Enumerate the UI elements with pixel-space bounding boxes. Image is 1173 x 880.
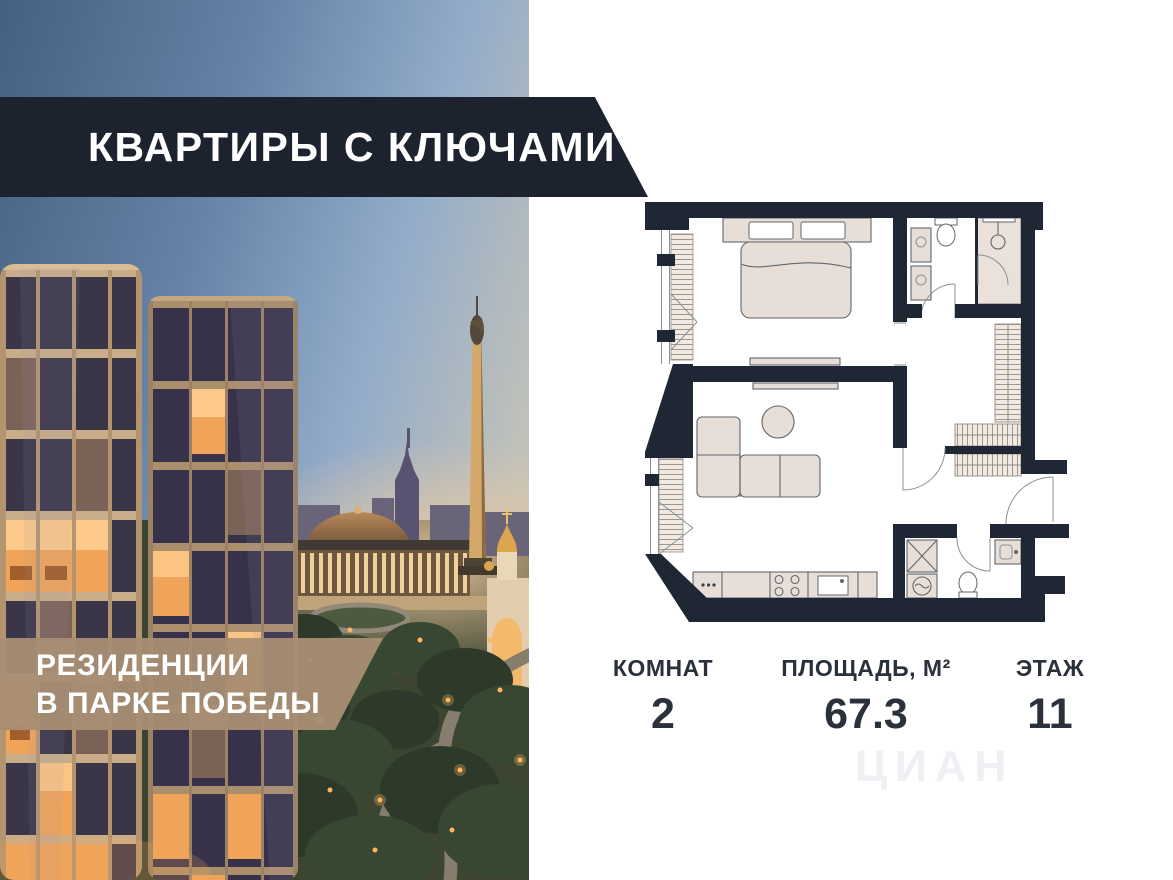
residence-banner: РЕЗИДЕНЦИИ В ПАРКЕ ПОБЕДЫ <box>0 638 383 730</box>
floor-plan-drawing: .wall{fill:#1e2733;} .fur{fill:#e7dfd7;s… <box>645 202 1069 622</box>
residential-tower-left <box>0 264 142 880</box>
stat-floor-value: 11 <box>965 690 1135 739</box>
kitchen-area <box>693 572 877 598</box>
residence-line1: РЕЗИДЕНЦИИ <box>36 647 249 685</box>
headline-text: КВАРТИРЫ С КЛЮЧАМИ <box>0 124 616 171</box>
stat-area: ПЛОЩАДЬ, М² 67.3 <box>756 655 976 739</box>
watermark: ЦИАН <box>855 742 1095 792</box>
stat-area-value: 67.3 <box>756 690 976 739</box>
residence-line2: В ПАРКЕ ПОБЕДЫ <box>36 685 320 723</box>
stat-floor-label: ЭТАЖ <box>965 655 1135 682</box>
listing-card: КВАРТИРЫ С КЛЮЧАМИ РЕЗИДЕНЦИИ В ПАРКЕ ПО… <box>0 0 1173 880</box>
residential-tower-right <box>148 296 298 880</box>
stat-rooms: КОМНАТ 2 <box>578 655 748 739</box>
headline-banner: КВАРТИРЫ С КЛЮЧАМИ <box>0 97 648 197</box>
stat-area-label: ПЛОЩАДЬ, М² <box>756 655 976 682</box>
stat-rooms-value: 2 <box>578 690 748 739</box>
floor-plan: .wall{fill:#1e2733;} .fur{fill:#e7dfd7;s… <box>645 202 1069 622</box>
stat-floor: ЭТАЖ 11 <box>965 655 1135 739</box>
stat-rooms-label: КОМНАТ <box>578 655 748 682</box>
